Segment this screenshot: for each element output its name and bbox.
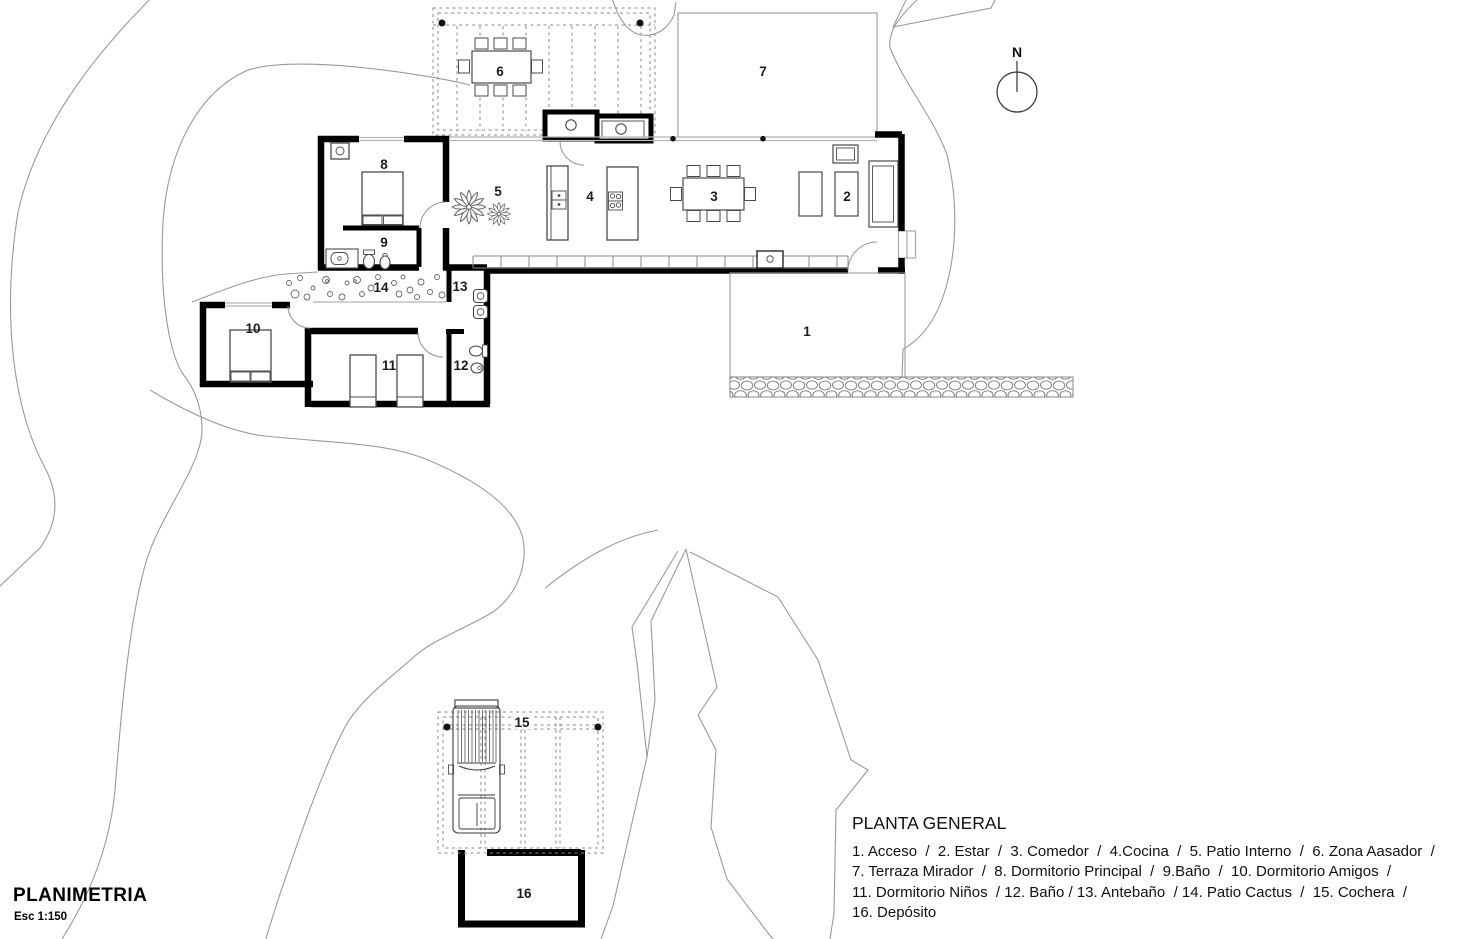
bidet xyxy=(380,256,390,269)
nightstand xyxy=(331,143,349,159)
toilet xyxy=(470,346,483,356)
floor-plan-drawing: N xyxy=(0,0,1482,939)
room-label-estar: 2 xyxy=(843,189,851,204)
room-label-bano12: 12 xyxy=(453,358,468,373)
legend-line: 11. Dormitorio Niños / 12. Baño / 13. An… xyxy=(852,883,1477,903)
room-label-terraza-mirador: 7 xyxy=(759,64,767,79)
room-label-deposito: 16 xyxy=(516,886,532,901)
room-label-dormitorio-ninos: 11 xyxy=(382,358,397,373)
room-label-bano9: 9 xyxy=(380,235,388,250)
door-arc-dormitorio-principal xyxy=(420,202,446,228)
pergola-column-dot xyxy=(637,20,644,27)
bed-single xyxy=(350,355,376,407)
room-label-zona-asador: 6 xyxy=(496,64,504,79)
doormat xyxy=(757,251,783,268)
acceso-court xyxy=(730,273,1073,397)
room-label-acceso: 1 xyxy=(803,324,811,339)
toilet xyxy=(364,255,375,269)
stone-path xyxy=(730,377,1073,397)
room-label-cochera: 15 xyxy=(514,715,530,730)
room-label-dormitorio-principal: 8 xyxy=(380,157,388,172)
deck-walkway xyxy=(473,256,848,268)
living-furniture xyxy=(799,145,898,227)
north-arrow: N xyxy=(997,44,1037,112)
legend-title: PLANTA GENERAL xyxy=(852,813,1477,834)
bedroom-principal-furniture xyxy=(331,143,403,225)
room-label-cocina: 4 xyxy=(586,189,594,204)
bbq-sink xyxy=(616,124,626,134)
legend: PLANTA GENERAL 1. Acceso / 2. Estar / 3.… xyxy=(852,813,1477,924)
legend-line: 16. Depósito xyxy=(852,903,1477,923)
bbq-sink xyxy=(566,120,576,130)
patio-cactus-plants xyxy=(287,275,446,301)
sheet-scale: Esc 1:150 xyxy=(14,911,67,923)
room-label-patio-interno: 5 xyxy=(494,184,502,199)
patio-interno-plants xyxy=(452,190,511,226)
pergola-column-dot xyxy=(439,20,446,27)
floor-plan-sheet: N xyxy=(0,0,1482,939)
door-arc-dormitorio-amigos xyxy=(288,306,310,328)
terraza-mirador-outline xyxy=(678,13,877,137)
door-arc-dormitorio-ninos xyxy=(418,332,443,357)
sheet-title: PLANIMETRIA xyxy=(13,885,147,907)
armchair xyxy=(799,172,822,216)
door-arc-cocina xyxy=(560,141,584,165)
room-label-dormitorio-amigos: 10 xyxy=(245,321,260,336)
bedroom-amigos-furniture xyxy=(230,330,271,382)
north-label: N xyxy=(1012,44,1022,60)
pickup-truck xyxy=(449,700,505,833)
carport-column-dot xyxy=(595,724,602,731)
door-arc-entrance xyxy=(848,242,877,271)
legend-line: 1. Acceso / 2. Estar / 3. Comedor / 4.Co… xyxy=(852,842,1477,862)
legend-line: 7. Terraza Mirador / 8. Dormitorio Princ… xyxy=(852,862,1477,882)
bed-single xyxy=(397,355,423,407)
carport-column-dot xyxy=(444,724,451,731)
room-label-comedor: 3 xyxy=(710,189,718,204)
room-label-patio-cactus: 14 xyxy=(373,280,389,295)
bath9-fixtures xyxy=(326,249,390,269)
carport xyxy=(438,712,603,853)
room-label-antebano: 13 xyxy=(452,279,468,294)
rock-outcrop-lines xyxy=(601,549,868,939)
